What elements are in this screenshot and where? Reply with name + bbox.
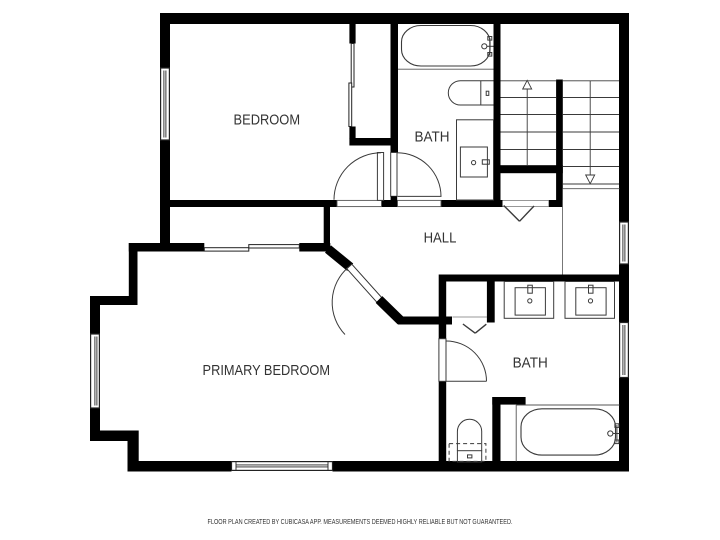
svg-text:FLOOR PLAN CREATED BY CUBICASA: FLOOR PLAN CREATED BY CUBICASA APP. MEAS…: [208, 519, 513, 526]
svg-text:BEDROOM: BEDROOM: [234, 112, 301, 129]
svg-text:PRIMARY BEDROOM: PRIMARY BEDROOM: [203, 362, 331, 379]
svg-text:HALL: HALL: [424, 229, 457, 246]
svg-text:BATH: BATH: [415, 128, 450, 145]
svg-text:BATH: BATH: [513, 355, 548, 372]
